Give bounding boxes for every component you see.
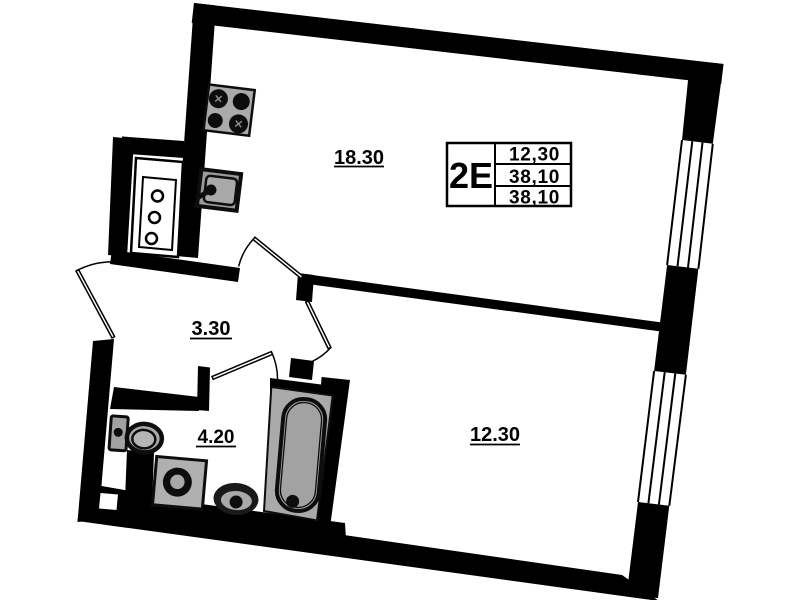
svg-text:12,30: 12,30	[509, 145, 560, 166]
svg-text:2E: 2E	[449, 155, 493, 196]
svg-text:3.30: 3.30	[192, 318, 231, 340]
svg-text:38,10: 38,10	[509, 188, 560, 209]
svg-text:12.30: 12.30	[470, 424, 520, 446]
svg-text:4.20: 4.20	[198, 427, 235, 448]
svg-text:38,10: 38,10	[509, 167, 560, 188]
